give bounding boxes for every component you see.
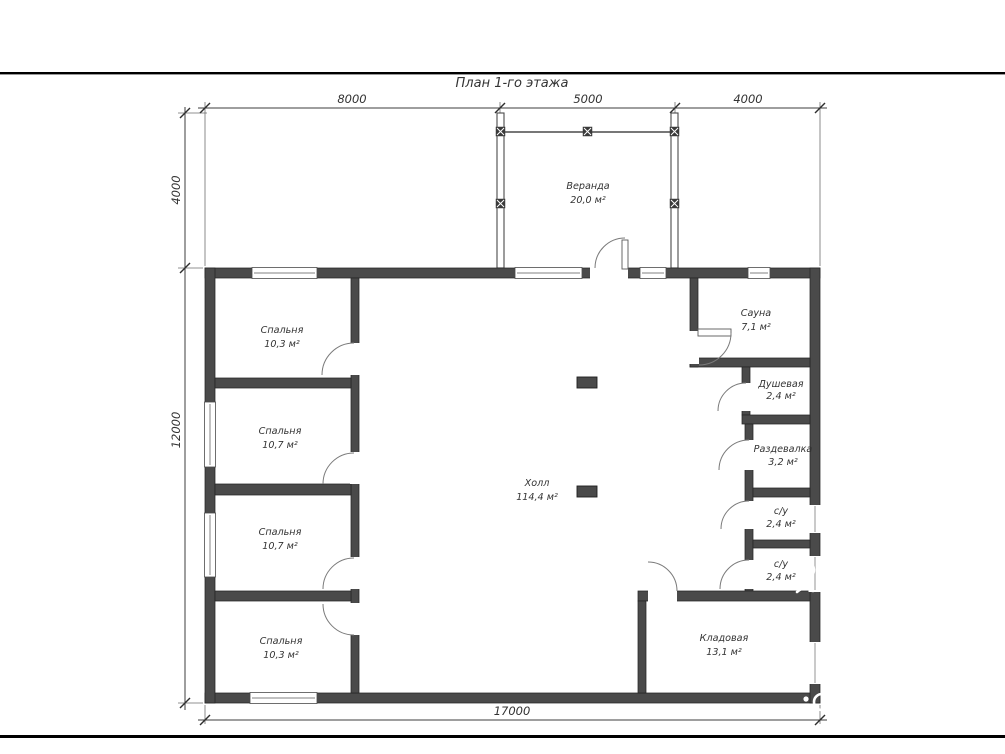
- room-label-veranda: Веранда 20,0 м²: [566, 181, 609, 206]
- svg-text:7,1 м²: 7,1 м²: [741, 322, 771, 333]
- window-bedroom3-left: [205, 513, 216, 577]
- svg-text:2,4 м²: 2,4 м²: [766, 391, 796, 402]
- wall-dressing-wc1: [753, 488, 810, 497]
- room-label-shower: Душевая 2,4 м²: [757, 379, 803, 402]
- door-storage: [648, 562, 677, 602]
- room-label-bedroom4: Спальня 10,3 м²: [260, 636, 303, 661]
- dim-left-12000: 12000: [169, 412, 183, 449]
- door-dressing: [719, 440, 754, 470]
- column-mark: [496, 127, 505, 136]
- svg-text:10,7 м²: 10,7 м²: [262, 541, 298, 552]
- svg-text:10,7 м²: 10,7 м²: [262, 440, 298, 451]
- floor-plan-page: План 1-го этажа 8000 5000 4000 4000 1200…: [0, 0, 1005, 754]
- window-bedroom2-left: [205, 402, 216, 467]
- svg-text:Спальня: Спальня: [259, 426, 302, 437]
- wall-shower-bottom: [742, 415, 810, 424]
- wall-bedroom2-3: [215, 484, 351, 495]
- door-bedroom1: [322, 343, 360, 375]
- window-bedroom1-top: [252, 268, 317, 279]
- svg-text:2,4 м²: 2,4 м²: [766, 572, 796, 583]
- svg-text:Сауна: Сауна: [741, 308, 772, 319]
- room-label-bedroom1: Спальня 10,3 м²: [261, 325, 304, 350]
- room-label-storage: Кладовая 13,1 м²: [700, 633, 749, 658]
- hall-pillar-top: [577, 377, 597, 388]
- room-label-bedroom2: Спальня 10,7 м²: [259, 426, 302, 451]
- bottom-border-line: [0, 735, 1005, 738]
- svg-text:с/у: с/у: [774, 506, 789, 517]
- room-label-sauna: Сауна 7,1 м²: [741, 308, 772, 333]
- column-mark: [670, 127, 679, 136]
- window-hall-top-left: [515, 268, 582, 279]
- room-labels: Веранда 20,0 м² Спальня 10,3 м² Спальня …: [259, 181, 813, 661]
- svg-text:10,3 м²: 10,3 м²: [264, 339, 300, 350]
- room-label-wc2: с/у 2,4 м²: [766, 559, 796, 583]
- wall-storage-left: [638, 601, 646, 693]
- room-label-wc1: с/у 2,4 м²: [766, 506, 796, 530]
- hall-pillar-bottom: [577, 486, 597, 497]
- top-border-line: [0, 72, 1005, 74]
- door-wc1: [721, 501, 754, 529]
- door-bedroom2: [323, 452, 360, 484]
- svg-text:20,0 м²: 20,0 м²: [570, 195, 606, 206]
- dim-top-5000: 5000: [573, 92, 602, 106]
- room-label-hall: Холл 114,4 м²: [516, 478, 558, 503]
- svg-text:Холл: Холл: [524, 478, 550, 489]
- floor-plan-drawing: План 1-го этажа 8000 5000 4000 4000 1200…: [0, 0, 1005, 754]
- window-sauna-top: [748, 268, 770, 279]
- svg-text:Веранда: Веранда: [566, 181, 609, 192]
- dim-top-8000: 8000: [337, 92, 366, 106]
- svg-text:13,1 м²: 13,1 м²: [706, 647, 742, 658]
- room-label-dressing: Раздевалка 3,2 м²: [754, 444, 813, 468]
- svg-text:Душевая: Душевая: [757, 379, 803, 390]
- dim-top-4000: 4000: [733, 92, 762, 106]
- door-bedroom4: [323, 603, 360, 635]
- svg-text:Кладовая: Кладовая: [700, 633, 749, 644]
- svg-text:3,2 м²: 3,2 м²: [768, 457, 798, 468]
- interior-walls: [215, 278, 810, 693]
- window-bedroom4-bottom: [250, 693, 317, 704]
- svg-text:2,4 м²: 2,4 м²: [766, 519, 796, 530]
- doors: [322, 238, 754, 635]
- wall-wc1-wc2: [753, 540, 810, 548]
- column-mark: [496, 199, 505, 208]
- wall-sauna-bottom: [690, 358, 810, 367]
- svg-text:Спальня: Спальня: [259, 527, 302, 538]
- door-shower: [718, 383, 751, 411]
- wall-bedroom3-4: [215, 591, 351, 601]
- svg-text:10,3 м²: 10,3 м²: [263, 650, 299, 661]
- wall-bedroom1-2: [215, 378, 351, 388]
- svg-text:114,4 м²: 114,4 м²: [516, 492, 558, 503]
- column-mark: [670, 199, 679, 208]
- dim-bottom-17000: 17000: [494, 704, 531, 718]
- plan-title: План 1-го этажа: [456, 76, 569, 91]
- dim-left-4000: 4000: [169, 175, 183, 204]
- svg-text:с/у: с/у: [774, 559, 789, 570]
- door-veranda-hall: [590, 238, 628, 279]
- svg-text:Раздевалка: Раздевалка: [754, 444, 813, 455]
- svg-text:Спальня: Спальня: [261, 325, 304, 336]
- door-bedroom3: [323, 557, 360, 589]
- column-mark: [583, 127, 592, 136]
- window-hall-top-right: [640, 268, 666, 279]
- room-label-bedroom3: Спальня 10,7 м²: [259, 527, 302, 552]
- svg-text:Спальня: Спальня: [260, 636, 303, 647]
- door-wc2: [720, 560, 754, 589]
